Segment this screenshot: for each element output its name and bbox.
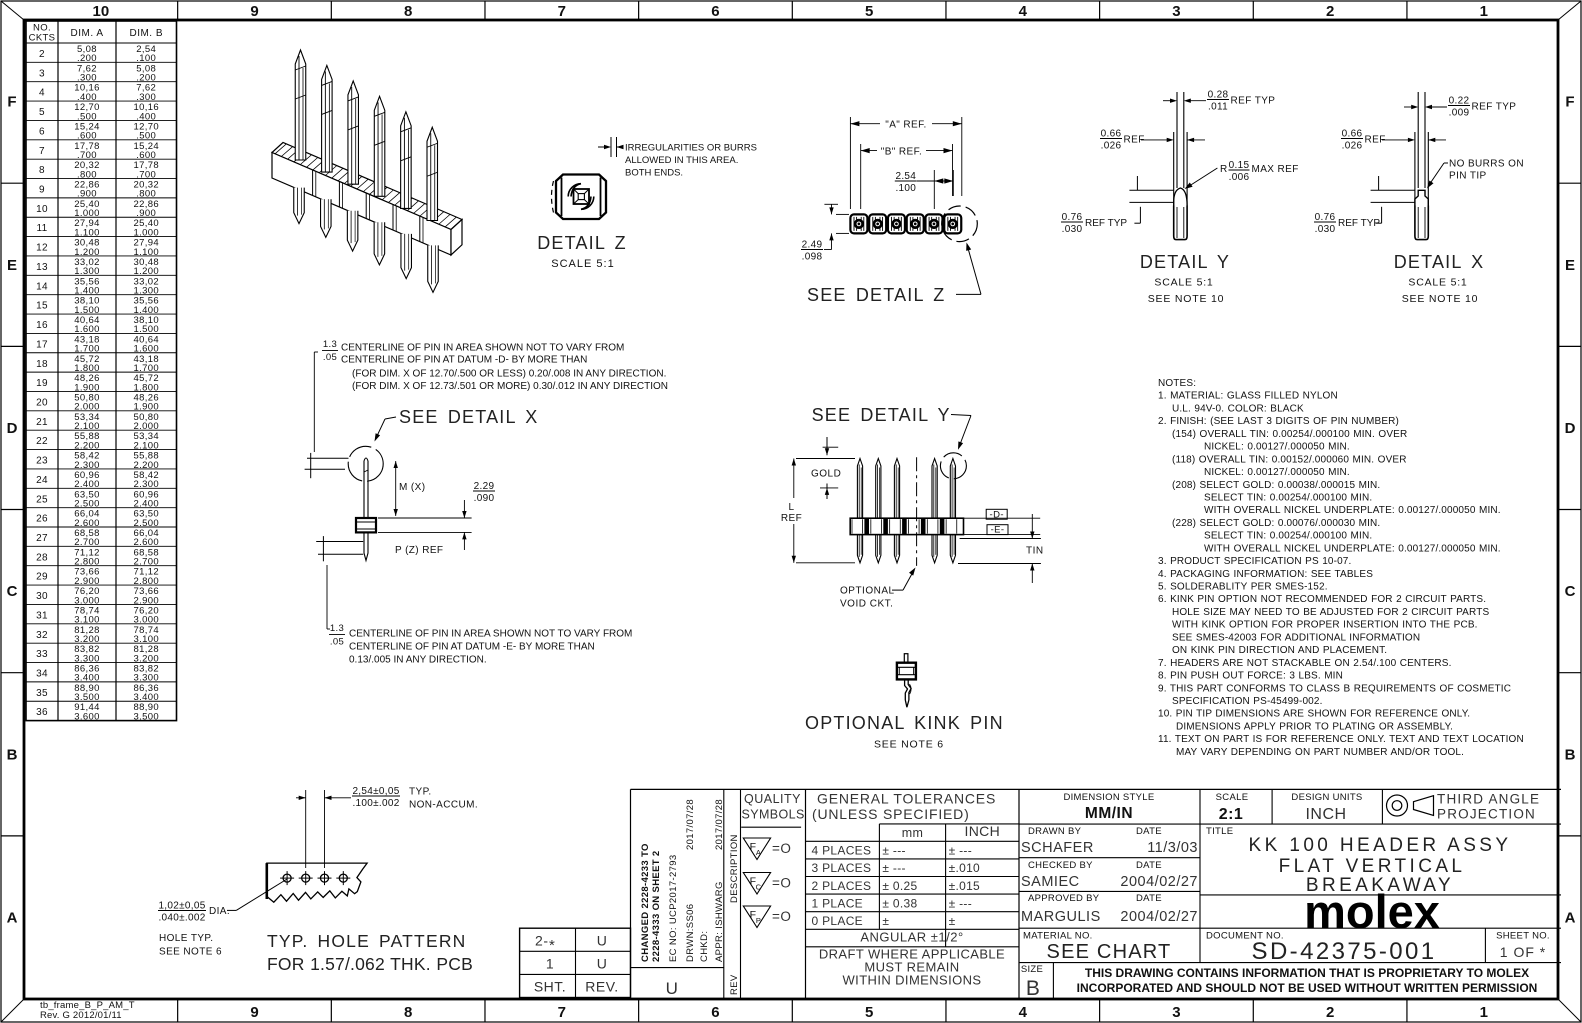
svg-text:(118) OVERALL TIN: 0.00152/.: (118) OVERALL TIN: 0.00152/.000060 MIN. … <box>1172 454 1407 465</box>
svg-text:(FOR DIM. X OF 12.70/.500 OR L: (FOR DIM. X OF 12.70/.500 OR LESS) 0.20/… <box>352 369 666 380</box>
svg-text:NO BURRS ON: NO BURRS ON <box>1449 159 1524 170</box>
svg-text:± ---: ± --- <box>949 844 972 858</box>
svg-text:2228-4333 ON SHEET 2: 2228-4333 ON SHEET 2 <box>651 850 662 962</box>
svg-text:7: 7 <box>558 1004 566 1021</box>
svg-text:DRWN:SS06: DRWN:SS06 <box>685 904 696 962</box>
svg-text:9: 9 <box>250 1004 258 1021</box>
svg-text:TITLE: TITLE <box>1206 826 1233 837</box>
svg-text:7. HEADERS ARE NOT STACKABLE O: 7. HEADERS ARE NOT STACKABLE ON 2.54/.10… <box>1158 658 1452 669</box>
svg-text:CHECKED BY: CHECKED BY <box>1028 860 1093 871</box>
svg-text:THIRD ANGLE: THIRD ANGLE <box>1437 792 1540 807</box>
svg-text:SAMIEC: SAMIEC <box>1021 874 1080 890</box>
svg-text:.030: .030 <box>1062 224 1083 235</box>
svg-text:2017/07/28: 2017/07/28 <box>685 799 696 850</box>
svg-text:2017/07/28: 2017/07/28 <box>714 799 725 850</box>
svg-text:14: 14 <box>36 281 48 292</box>
svg-text:.098: .098 <box>802 252 823 263</box>
svg-text:CHKD:: CHKD: <box>699 931 710 962</box>
svg-text:DIMENSIONS APPLY PRIOR TO PLAT: DIMENSIONS APPLY PRIOR TO PLATING OR ASS… <box>1176 721 1453 732</box>
svg-text:8: 8 <box>404 3 412 20</box>
svg-text:2:1: 2:1 <box>1219 806 1244 823</box>
svg-text:±: ± <box>949 914 956 928</box>
svg-text:SELECT TIN: 0.00254/.000100 M: SELECT TIN: 0.00254/.000100 MIN. <box>1204 492 1372 503</box>
svg-text:R: R <box>1220 164 1228 175</box>
svg-text:MARGULIS: MARGULIS <box>1021 909 1101 925</box>
svg-text:4: 4 <box>1019 1004 1028 1021</box>
svg-text:mm: mm <box>902 826 924 840</box>
svg-text:INCH: INCH <box>964 823 1000 839</box>
svg-text:2. FINISH: (SEE LAST 3 DIGITS: 2. FINISH: (SEE LAST 3 DIGITS OF PIN NUM… <box>1158 416 1399 427</box>
svg-text:KK 100 HEADER ASSY: KK 100 HEADER ASSY <box>1249 835 1512 856</box>
svg-text:"B" REF.: "B" REF. <box>881 146 922 157</box>
svg-text:.040±.002: .040±.002 <box>158 913 205 924</box>
svg-text:2: 2 <box>39 49 45 60</box>
svg-text:SPECIFICATION PS-45499-002.: SPECIFICATION PS-45499-002. <box>1172 696 1323 707</box>
svg-text:1: 1 <box>1480 1004 1488 1021</box>
svg-text:3. PRODUCT SPECIFICATION PS 10: 3. PRODUCT SPECIFICATION PS 10-07. <box>1158 556 1351 567</box>
svg-text:BOTH ENDS.: BOTH ENDS. <box>625 168 683 179</box>
svg-text:VOID CKT.: VOID CKT. <box>840 599 893 610</box>
svg-text:WITH KINK OPTION FOR PROPER IN: WITH KINK OPTION FOR PROPER INSERTION IN… <box>1172 620 1478 631</box>
svg-text:29: 29 <box>36 572 48 583</box>
svg-text:7: 7 <box>558 3 566 20</box>
svg-text:30: 30 <box>36 591 48 602</box>
svg-text:CKTS: CKTS <box>29 33 56 44</box>
svg-text:1: 1 <box>546 956 554 972</box>
svg-text:2.54: 2.54 <box>895 171 916 182</box>
svg-text:REV.: REV. <box>585 979 618 995</box>
svg-text:26: 26 <box>36 514 48 525</box>
svg-text:2.49: 2.49 <box>802 240 823 251</box>
svg-text:10. PIN TIP DIMENSIONS ARE SHO: 10. PIN TIP DIMENSIONS ARE SHOWN FOR REF… <box>1158 709 1470 720</box>
svg-text:11. TEXT ON PART IS FOR REFERE: 11. TEXT ON PART IS FOR REFERENCE ONLY. … <box>1158 734 1524 745</box>
svg-text:SCHAFER: SCHAFER <box>1021 840 1094 856</box>
svg-text:SEE SMES-42003 FOR ADDITIONAL: SEE SMES-42003 FOR ADDITIONAL INFORMATIO… <box>1172 632 1420 643</box>
svg-text:F: F <box>1565 94 1574 111</box>
svg-text:DATE: DATE <box>1136 893 1162 904</box>
svg-text:27: 27 <box>36 533 48 544</box>
svg-text:HOLE SIZE MAY NEED TO BE ADJUS: HOLE SIZE MAY NEED TO BE ADJUSTED FOR 2 … <box>1172 607 1489 618</box>
svg-text:DATE: DATE <box>1136 826 1162 837</box>
svg-text:REF: REF <box>781 513 802 524</box>
svg-text:± 0.38: ± 0.38 <box>882 896 917 910</box>
svg-text:2,54±0,05: 2,54±0,05 <box>352 786 399 797</box>
svg-text:FLAT VERTICAL: FLAT VERTICAL <box>1279 856 1466 877</box>
svg-text:WITH OVERALL NICKEL UNDERPLATE: WITH OVERALL NICKEL UNDERPLATE: 0.00127/… <box>1204 505 1501 516</box>
svg-text:SEE NOTE 6: SEE NOTE 6 <box>159 947 222 958</box>
svg-text:=O: =O <box>772 876 791 891</box>
svg-text:(154) OVERALL TIN: 0.00254/.: (154) OVERALL TIN: 0.00254/.000100 MIN. … <box>1172 429 1407 440</box>
svg-text:±: ± <box>882 914 889 928</box>
svg-text:18: 18 <box>36 359 48 370</box>
svg-text:35: 35 <box>36 688 48 699</box>
svg-text:NICKEL: 0.00127/.000050 MIN.: NICKEL: 0.00127/.000050 MIN. <box>1204 467 1350 478</box>
svg-text:SCALE 5:1: SCALE 5:1 <box>551 258 614 270</box>
svg-text:3 PLACES: 3 PLACES <box>812 861 872 875</box>
svg-text:DETAIL Z: DETAIL Z <box>537 233 627 253</box>
svg-text:P: P <box>756 916 761 925</box>
svg-text:(228) SELECT GOLD: 0.00076/.: (228) SELECT GOLD: 0.00076/.000030 MIN. <box>1172 518 1380 529</box>
svg-text:SD-42375-001: SD-42375-001 <box>1252 938 1437 965</box>
svg-text:MM/IN: MM/IN <box>1085 805 1133 822</box>
svg-text:HOLE TYP.: HOLE TYP. <box>159 933 213 944</box>
svg-text:24: 24 <box>36 475 48 486</box>
svg-text:± 0.25: ± 0.25 <box>882 879 917 893</box>
svg-text:D: D <box>7 420 18 437</box>
svg-text:19: 19 <box>36 378 48 389</box>
svg-text:REF TYP: REF TYP <box>1085 218 1127 229</box>
svg-text:1 OF *: 1 OF * <box>1500 944 1546 960</box>
svg-text:A: A <box>1565 909 1576 926</box>
svg-text:-D-: -D- <box>990 509 1004 520</box>
svg-text:5. SOLDERABLITY PER SMES-152.: 5. SOLDERABLITY PER SMES-152. <box>1158 582 1328 593</box>
svg-text:INCORPORATED AND SHOULD NOT BE: INCORPORATED AND SHOULD NOT BE USED WITH… <box>1077 981 1538 995</box>
svg-text:APPROVED BY: APPROVED BY <box>1028 893 1100 904</box>
svg-text:15: 15 <box>36 301 48 312</box>
svg-text:APPR: ISHWARG: APPR: ISHWARG <box>714 881 725 962</box>
svg-text:9: 9 <box>39 185 45 196</box>
svg-text:20: 20 <box>36 397 48 408</box>
svg-text:CENTERLINE OF PIN IN AREA SHOW: CENTERLINE OF PIN IN AREA SHOWN NOT TO V… <box>349 629 632 640</box>
svg-text:±.010: ±.010 <box>949 861 980 875</box>
svg-text:23: 23 <box>36 456 48 467</box>
svg-text:1: 1 <box>1480 3 1488 20</box>
svg-text:PIN TIP: PIN TIP <box>1449 171 1487 182</box>
svg-text:B: B <box>7 746 18 763</box>
svg-text:REV: REV <box>729 974 740 995</box>
svg-text:DIM. B: DIM. B <box>129 28 163 39</box>
svg-text:0.22: 0.22 <box>1449 96 1470 107</box>
svg-text:2-: 2- <box>535 933 548 949</box>
svg-text:2 PLACES: 2 PLACES <box>812 879 872 893</box>
svg-text:SEE CHART: SEE CHART <box>1047 941 1172 963</box>
svg-text:2004/02/27: 2004/02/27 <box>1120 909 1198 925</box>
svg-text:.026: .026 <box>1342 141 1363 152</box>
svg-text:L: L <box>789 502 795 513</box>
svg-text:MATERIAL NO.: MATERIAL NO. <box>1023 931 1093 942</box>
svg-text:molex: molex <box>1304 885 1440 938</box>
svg-text:2004/02/27: 2004/02/27 <box>1120 874 1198 890</box>
svg-text:11/3/03: 11/3/03 <box>1147 840 1198 856</box>
svg-text:.090: .090 <box>474 493 495 504</box>
svg-text:0.76: 0.76 <box>1062 212 1083 223</box>
svg-text:F: F <box>7 94 16 111</box>
svg-text:SEE DETAIL X: SEE DETAIL X <box>399 407 538 427</box>
svg-text:0.28: 0.28 <box>1208 90 1229 101</box>
svg-text:DESCRIPTION: DESCRIPTION <box>729 834 740 903</box>
svg-text:8: 8 <box>39 165 45 176</box>
svg-text:TYP.: TYP. <box>409 787 432 798</box>
svg-text:DESIGN UNITS: DESIGN UNITS <box>1291 792 1362 803</box>
svg-text:.026: .026 <box>1101 141 1122 152</box>
svg-text:8. PIN PUSH OUT FORCE: 3 LBS.: 8. PIN PUSH OUT FORCE: 3 LBS. MIN <box>1158 671 1343 682</box>
svg-text:2.29: 2.29 <box>474 481 495 492</box>
svg-text:E: E <box>1565 257 1575 274</box>
svg-text:(FOR DIM. X OF 12.73/.501 OR M: (FOR DIM. X OF 12.73/.501 OR MORE) 0.30/… <box>352 381 668 392</box>
svg-text:SCALE 5:1: SCALE 5:1 <box>1154 277 1213 289</box>
svg-text:TIN: TIN <box>1026 546 1044 557</box>
svg-text:6. KINK PIN OPTION NOT RECOMME: 6. KINK PIN OPTION NOT RECOMMENDED FOR 2… <box>1158 594 1486 605</box>
svg-text:1 PLACE: 1 PLACE <box>812 896 863 910</box>
svg-text:2: 2 <box>1326 1004 1334 1021</box>
svg-text:3.600: 3.600 <box>74 711 100 722</box>
svg-text:U.L. 94V-0. COLOR: BLACK: U.L. 94V-0. COLOR: BLACK <box>1172 403 1304 414</box>
svg-text:31: 31 <box>36 610 48 621</box>
svg-text:.100: .100 <box>895 183 916 194</box>
svg-text:SEE NOTE 10: SEE NOTE 10 <box>1402 293 1479 305</box>
svg-text:A: A <box>7 909 18 926</box>
svg-text:DIA.: DIA. <box>209 906 230 917</box>
svg-text:1.3: 1.3 <box>323 339 337 350</box>
svg-text:2: 2 <box>1326 3 1334 20</box>
svg-text:.05: .05 <box>330 637 344 648</box>
svg-text:C: C <box>7 583 18 600</box>
svg-text:.006: .006 <box>1229 172 1250 183</box>
svg-text:SCALE: SCALE <box>1216 792 1249 803</box>
svg-text:1. MATERIAL: GLASS FILLED NYLO: 1. MATERIAL: GLASS FILLED NYLON <box>1158 391 1338 402</box>
svg-text:ON KINK PIN DIRECTION AND PLAC: ON KINK PIN DIRECTION AND PLACEMENT. <box>1172 645 1387 656</box>
svg-text:U: U <box>666 979 679 998</box>
svg-text:(208) SELECT GOLD: 0.00038/.: (208) SELECT GOLD: 0.00038/.000015 MIN. <box>1172 480 1380 491</box>
svg-text:GENERAL TOLERANCES: GENERAL TOLERANCES <box>817 791 996 807</box>
svg-text:INCH: INCH <box>1305 806 1346 823</box>
svg-text:C: C <box>1565 583 1576 600</box>
svg-text:SELECT TIN: 0.00254/.000100 M: SELECT TIN: 0.00254/.000100 MIN. <box>1204 531 1372 542</box>
svg-text:DIMENSION STYLE: DIMENSION STYLE <box>1063 792 1154 803</box>
svg-text:10: 10 <box>36 204 48 215</box>
svg-text:5: 5 <box>39 107 45 118</box>
svg-text:17: 17 <box>36 339 48 350</box>
svg-text:*: * <box>549 937 555 954</box>
svg-text:5: 5 <box>865 1004 873 1021</box>
svg-text:4: 4 <box>39 88 45 99</box>
svg-text:QUALITY: QUALITY <box>744 792 801 806</box>
svg-text:3: 3 <box>1172 1004 1180 1021</box>
svg-text:4. PACKAGING INFORMATION: SEE: 4. PACKAGING INFORMATION: SEE TABLES <box>1158 569 1373 580</box>
svg-text:± ---: ± --- <box>949 896 972 910</box>
svg-text:12: 12 <box>36 243 48 254</box>
svg-text:WITHIN DIMENSIONS: WITHIN DIMENSIONS <box>843 973 982 988</box>
svg-text:IRREGULARITIES OR BURRS: IRREGULARITIES OR BURRS <box>625 143 757 154</box>
svg-text:"A" REF.: "A" REF. <box>885 120 926 131</box>
svg-text:11: 11 <box>36 223 47 234</box>
svg-text:A: A <box>756 848 761 857</box>
svg-text:7: 7 <box>39 146 45 157</box>
svg-text:22: 22 <box>36 436 48 447</box>
svg-text:33: 33 <box>36 649 48 660</box>
svg-text:6: 6 <box>711 1004 719 1021</box>
svg-text:WITH OVERALL NICKEL UNDERPLATE: WITH OVERALL NICKEL UNDERPLATE: 0.00127/… <box>1204 543 1501 554</box>
svg-text:32: 32 <box>36 630 48 641</box>
svg-text:DETAIL X: DETAIL X <box>1394 252 1485 272</box>
svg-text:P (Z) REF: P (Z) REF <box>395 545 443 556</box>
svg-text:EC NO: UCP2017-2793: EC NO: UCP2017-2793 <box>668 854 679 962</box>
svg-text:REF TYP: REF TYP <box>1472 102 1517 113</box>
svg-text:E: E <box>7 257 17 274</box>
svg-text:M (X): M (X) <box>399 482 425 493</box>
svg-text:34: 34 <box>36 669 48 680</box>
svg-text:6: 6 <box>711 3 719 20</box>
svg-text:4 PLACES: 4 PLACES <box>812 844 872 858</box>
svg-text:5: 5 <box>865 3 873 20</box>
svg-text:.009: .009 <box>1449 108 1470 119</box>
svg-text:± ---: ± --- <box>882 861 905 875</box>
svg-text:1,02±0,05: 1,02±0,05 <box>158 901 205 912</box>
svg-text:-E-: -E- <box>991 525 1005 536</box>
svg-text:21: 21 <box>36 417 48 428</box>
svg-text:REF TYP: REF TYP <box>1338 218 1380 229</box>
svg-text:SEE NOTE 6: SEE NOTE 6 <box>874 739 944 751</box>
svg-text:U: U <box>597 956 608 972</box>
svg-text:SHT.: SHT. <box>534 979 566 995</box>
svg-text:.100±.002: .100±.002 <box>352 798 399 809</box>
svg-text:3: 3 <box>1172 3 1180 20</box>
svg-text:NOTES:: NOTES: <box>1158 378 1196 389</box>
svg-text:± ---: ± --- <box>882 844 905 858</box>
svg-text:THIS DRAWING CONTAINS INFORMAT: THIS DRAWING CONTAINS INFORMATION THAT I… <box>1085 966 1529 980</box>
svg-text:SHEET NO.: SHEET NO. <box>1496 931 1550 942</box>
svg-text:U: U <box>597 933 608 949</box>
svg-text:B: B <box>1026 977 1040 1000</box>
svg-text:ANGULAR ±1/2°: ANGULAR ±1/2° <box>860 930 963 945</box>
svg-text:28: 28 <box>36 552 48 563</box>
svg-text:SEE DETAIL Z: SEE DETAIL Z <box>807 285 945 305</box>
svg-text:DETAIL Y: DETAIL Y <box>1140 252 1230 272</box>
svg-text:0.66: 0.66 <box>1342 129 1363 140</box>
svg-text:GOLD: GOLD <box>811 469 841 480</box>
svg-text:9: 9 <box>250 3 258 20</box>
svg-text:DRAWN BY: DRAWN BY <box>1028 826 1082 837</box>
svg-text:0.13/.005 IN ANY DIRECTION.: 0.13/.005 IN ANY DIRECTION. <box>349 655 487 666</box>
svg-text:0.76: 0.76 <box>1315 212 1336 223</box>
svg-text:DIM. A: DIM. A <box>70 28 103 39</box>
svg-text:OPTIONAL KINK PIN: OPTIONAL KINK PIN <box>805 713 1004 733</box>
svg-text:PROJECTION: PROJECTION <box>1437 807 1536 822</box>
svg-text:3.500: 3.500 <box>133 711 159 722</box>
svg-text:Rev. G 2012/01/11: Rev. G 2012/01/11 <box>40 1010 122 1021</box>
svg-text:DATE: DATE <box>1136 860 1162 871</box>
svg-text:3: 3 <box>39 68 45 79</box>
svg-text:0 PLACE: 0 PLACE <box>812 914 863 928</box>
svg-text:CENTERLINE OF PIN AT DATUM -D-: CENTERLINE OF PIN AT DATUM -D- BY MORE T… <box>341 355 587 366</box>
svg-text:9. THIS PART CONFORMS TO CLASS: 9. THIS PART CONFORMS TO CLASS B REQUIRE… <box>1158 683 1511 694</box>
svg-text:.030: .030 <box>1315 224 1336 235</box>
svg-text:CHANGED 2228-4233 TO: CHANGED 2228-4233 TO <box>640 843 651 962</box>
svg-text:TYP. HOLE PATTERN: TYP. HOLE PATTERN <box>267 931 467 951</box>
svg-text:±.015: ±.015 <box>949 879 980 893</box>
svg-text:13: 13 <box>36 262 48 273</box>
svg-text:4: 4 <box>1019 3 1028 20</box>
svg-text:SCALE 5:1: SCALE 5:1 <box>1408 277 1467 289</box>
svg-text:6: 6 <box>39 126 45 137</box>
svg-text:.05: .05 <box>323 352 337 363</box>
svg-text:NON-ACCUM.: NON-ACCUM. <box>409 800 478 811</box>
svg-text:36: 36 <box>36 707 48 718</box>
svg-text:C: C <box>756 883 762 892</box>
svg-text:SEE NOTE 10: SEE NOTE 10 <box>1148 293 1225 305</box>
svg-text:0.66: 0.66 <box>1101 129 1122 140</box>
svg-text:8: 8 <box>404 1004 412 1021</box>
svg-text:CENTERLINE OF PIN IN AREA SHOW: CENTERLINE OF PIN IN AREA SHOWN NOT TO V… <box>341 343 624 354</box>
svg-text:NICKEL: 0.00127/.000050 MIN.: NICKEL: 0.00127/.000050 MIN. <box>1204 442 1350 453</box>
svg-text:SYMBOLS: SYMBOLS <box>742 808 805 822</box>
svg-text:ALLOWED IN THIS AREA.: ALLOWED IN THIS AREA. <box>625 155 738 166</box>
svg-text:FOR 1.57/.062 THK. PCB: FOR 1.57/.062 THK. PCB <box>267 954 473 974</box>
svg-text:MAY VARY DEPENDING ON PART NUM: MAY VARY DEPENDING ON PART NUMBER AND/OR… <box>1176 747 1464 758</box>
svg-text:D: D <box>1565 420 1576 437</box>
svg-text:B: B <box>1565 746 1576 763</box>
svg-text:10: 10 <box>92 3 109 20</box>
svg-text:=O: =O <box>772 909 791 924</box>
svg-text:1.3: 1.3 <box>330 623 344 634</box>
svg-text:0.15: 0.15 <box>1229 160 1250 171</box>
svg-text:(UNLESS SPECIFIED): (UNLESS SPECIFIED) <box>812 806 970 822</box>
svg-text:16: 16 <box>36 320 48 331</box>
svg-text:SEE DETAIL Y: SEE DETAIL Y <box>812 405 951 425</box>
svg-text:REF TYP: REF TYP <box>1231 96 1276 107</box>
svg-text:MAX REF: MAX REF <box>1252 164 1299 175</box>
svg-text:CENTERLINE OF PIN AT DATUM -E-: CENTERLINE OF PIN AT DATUM -E- BY MORE T… <box>349 642 595 653</box>
svg-text:25: 25 <box>36 494 48 505</box>
svg-text:.011: .011 <box>1208 102 1228 113</box>
svg-text:=O: =O <box>772 841 791 856</box>
svg-text:OPTIONAL: OPTIONAL <box>840 586 895 597</box>
svg-text:SIZE: SIZE <box>1021 964 1043 975</box>
